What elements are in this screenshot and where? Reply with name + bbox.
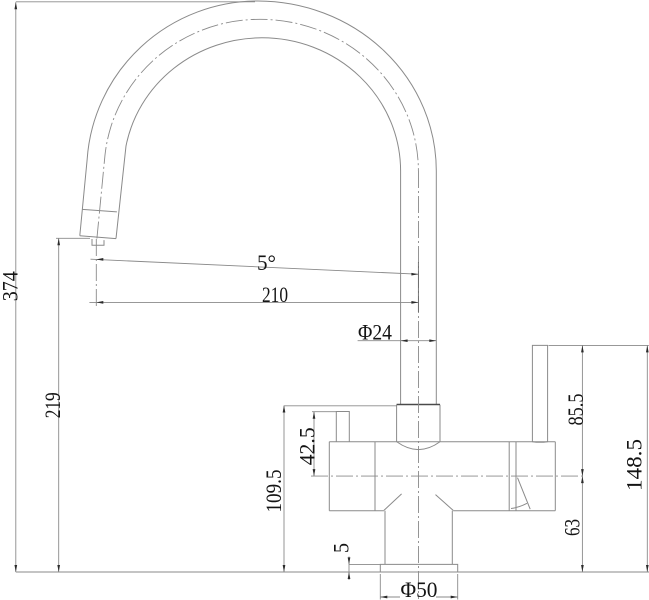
svg-text:63: 63	[560, 519, 585, 536]
svg-text:Φ24: Φ24	[358, 320, 392, 345]
svg-text:210: 210	[262, 282, 288, 307]
svg-text:374: 374	[0, 271, 22, 301]
svg-text:Φ50: Φ50	[401, 577, 438, 600]
svg-text:42.5: 42.5	[295, 427, 320, 465]
svg-text:5: 5	[329, 543, 354, 553]
svg-text:219: 219	[40, 392, 65, 418]
svg-text:85.5: 85.5	[563, 394, 588, 426]
svg-text:5°: 5°	[257, 250, 276, 275]
svg-text:148.5: 148.5	[622, 439, 647, 491]
svg-text:109.5: 109.5	[261, 470, 286, 513]
